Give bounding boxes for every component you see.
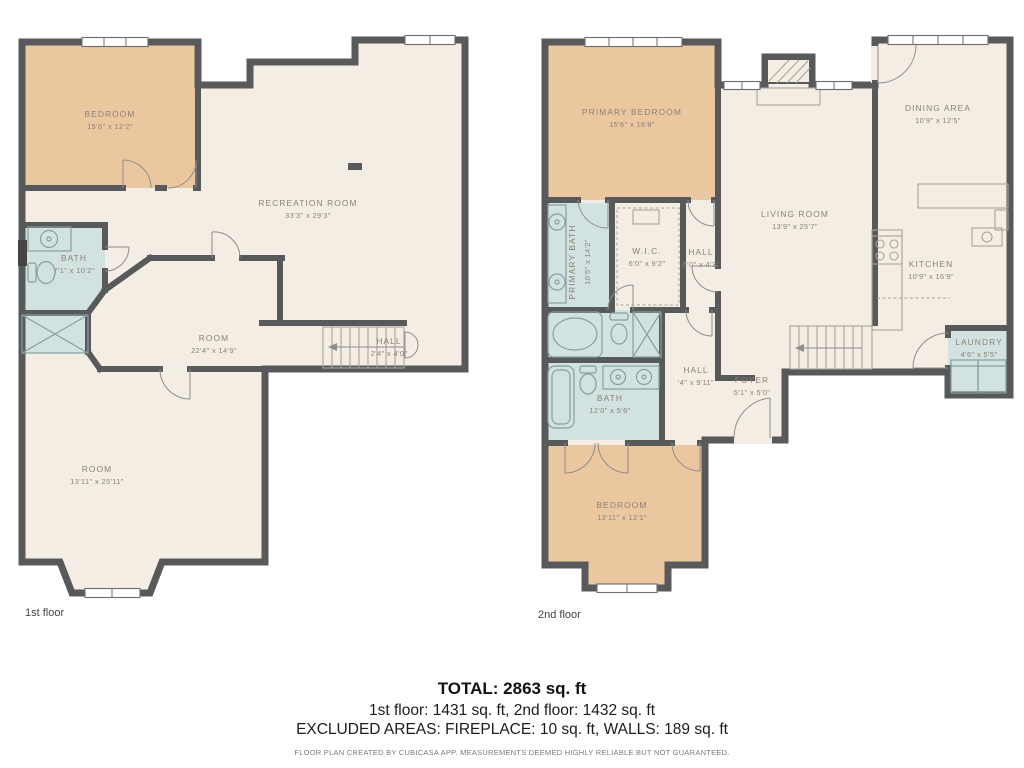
room-dims: '4" x 9'11": [678, 378, 714, 387]
disclaimer: FLOOR PLAN CREATED BY CUBICASA APP. MEAS…: [0, 748, 1024, 757]
floor-plans-canvas: BEDROOM 15'6" x 12'2" RECREATION ROOM 33…: [0, 0, 1024, 660]
room-dims: 33'3" x 29'3": [285, 211, 331, 220]
room-dims: 6'0" x 9'2": [629, 259, 666, 268]
area-summary: TOTAL: 2863 sq. ft 1st floor: 1431 sq. f…: [0, 679, 1024, 740]
room-dims: 4'6" x 5'5": [961, 350, 998, 359]
room-label: HALL: [688, 247, 713, 257]
room-dims: 13'11" x 12'1": [597, 513, 647, 522]
room-label: BEDROOM: [85, 109, 136, 119]
room-label: BATH: [61, 253, 87, 263]
room-label: W.I.C.: [632, 246, 661, 256]
room-label: ROOM: [82, 464, 112, 474]
room-label: BATH: [597, 393, 623, 403]
room-label: PRIMARY BATH: [567, 224, 577, 299]
room-dims: 10'5" x 14'2": [583, 239, 592, 285]
room-label: HALL: [376, 336, 401, 346]
room-dims: 15'6" x 16'8": [609, 120, 655, 129]
room-dims: 13'9" x 25'7": [772, 222, 818, 231]
floor-areas: 1st floor: 1431 sq. ft, 2nd floor: 1432 …: [0, 702, 1024, 720]
room-label: DINING AREA: [905, 103, 971, 113]
total-area: TOTAL: 2863 sq. ft: [0, 679, 1024, 699]
room-label: LIVING ROOM: [761, 209, 829, 219]
room-label: LAUNDRY: [955, 337, 1003, 347]
floor1-vent: [348, 163, 362, 170]
floor-plan-1st: BEDROOM 15'6" x 12'2" RECREATION ROOM 33…: [18, 36, 465, 598]
room-label: KITCHEN: [909, 259, 953, 269]
excluded-areas: EXCLUDED AREAS: FIREPLACE: 10 sq. ft, WA…: [0, 721, 1024, 739]
floor1-duct: [18, 240, 27, 266]
floor-plan-page: BEDROOM 15'6" x 12'2" RECREATION ROOM 33…: [0, 0, 1024, 768]
floor2-caption: 2nd floor: [538, 609, 581, 621]
room-label: ROOM: [199, 333, 229, 343]
room-dims: 12'0" x 5'6": [589, 406, 630, 415]
room-dims: 10'9" x 12'5": [915, 116, 961, 125]
floor1-caption: 1st floor: [25, 607, 64, 619]
room-dims: 10'9" x 16'9": [908, 272, 954, 281]
room-dims: 15'6" x 12'2": [87, 122, 133, 131]
entry-door-opening: [734, 436, 772, 444]
room-label: BEDROOM: [597, 500, 648, 510]
room-label: PRIMARY BEDROOM: [582, 107, 682, 117]
room-dims: 5'0" x 4'3": [683, 260, 720, 269]
floor-plan-2nd: PRIMARY BEDROOM 15'6" x 16'8" PRIMARY BA…: [545, 36, 1010, 593]
room-label: HALL: [683, 365, 708, 375]
room-dims: 13'11" x 25'11": [70, 477, 124, 486]
room-dims: 22'4" x 14'9": [191, 346, 237, 355]
room-dims: 2'4" x 4'0": [371, 349, 408, 358]
room-label: RECREATION ROOM: [258, 198, 357, 208]
room-dims: 7'1" x 10'2": [53, 266, 94, 275]
room-dims: 5'1" x 5'0": [734, 388, 771, 397]
room-label: FOYER: [735, 375, 769, 385]
